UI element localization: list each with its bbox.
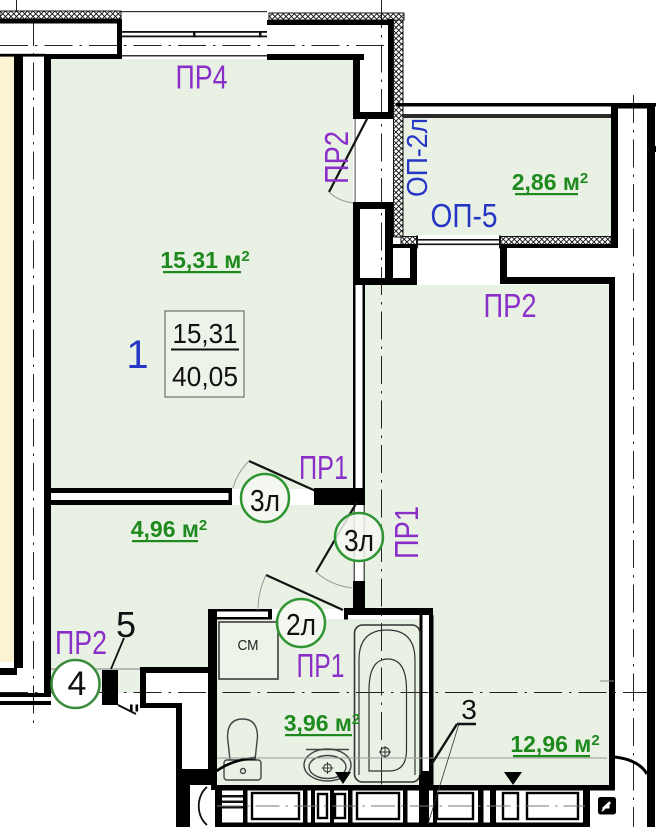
svg-text:ПР2: ПР2 [55, 624, 107, 661]
svg-text:2,86 м2: 2,86 м2 [512, 169, 589, 195]
svg-text:1: 1 [126, 333, 148, 377]
svg-text:СМ: СМ [238, 637, 259, 654]
svg-text:3л: 3л [344, 523, 374, 558]
svg-text:12,96 м2: 12,96 м2 [510, 731, 599, 757]
svg-text:4: 4 [68, 665, 87, 703]
svg-text:3: 3 [461, 694, 477, 725]
svg-text:4,96 м2: 4,96 м2 [131, 516, 208, 542]
svg-text:5: 5 [116, 604, 136, 645]
svg-text:3л: 3л [250, 483, 280, 518]
svg-text:ПР2: ПР2 [318, 131, 355, 184]
svg-text:ПР4: ПР4 [176, 59, 228, 96]
svg-text:40,05: 40,05 [172, 361, 238, 392]
svg-text:ОП-5: ОП-5 [431, 197, 498, 234]
svg-text:ПР1: ПР1 [299, 449, 348, 486]
svg-text:ОП-2л: ОП-2л [402, 118, 434, 197]
svg-text:15,31: 15,31 [173, 318, 238, 349]
svg-text:2л: 2л [286, 607, 316, 642]
svg-text:ПР1: ПР1 [388, 506, 425, 559]
svg-text:15,31 м2: 15,31 м2 [160, 247, 249, 273]
svg-text:ПР1: ПР1 [297, 647, 345, 684]
svg-text:3,96 м2: 3,96 м2 [284, 710, 361, 736]
svg-text:ПР2: ПР2 [484, 287, 537, 324]
